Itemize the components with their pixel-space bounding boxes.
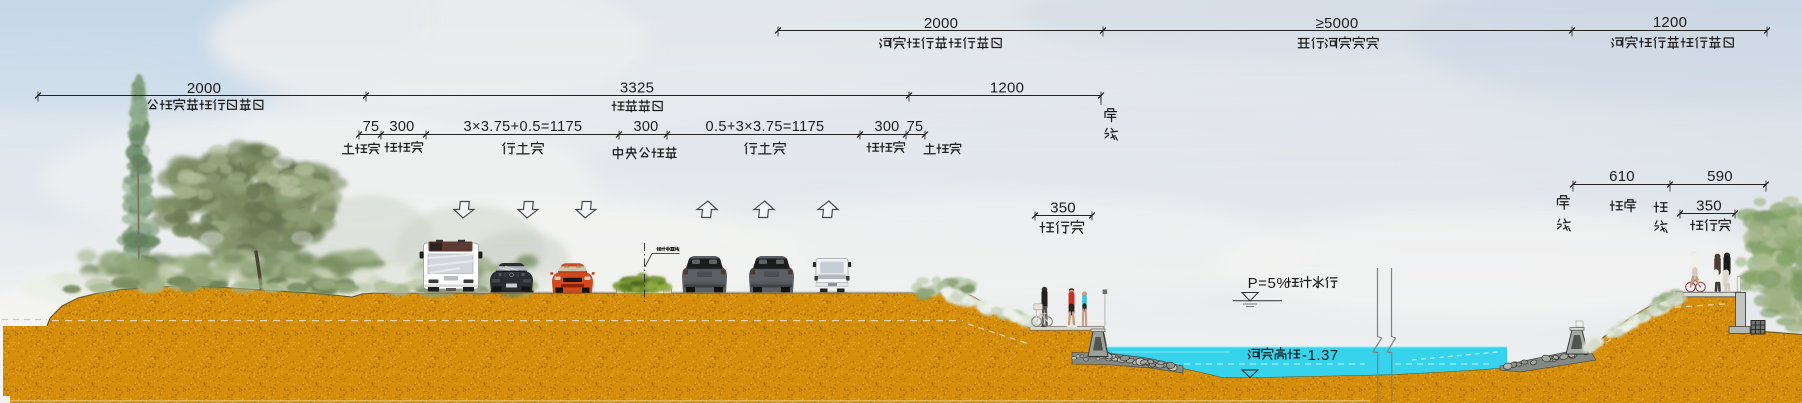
svg-text:2000: 2000: [924, 15, 958, 32]
svg-text:75: 75: [907, 119, 924, 135]
svg-text:610: 610: [1609, 168, 1635, 185]
svg-text:1200: 1200: [1653, 14, 1687, 31]
svg-text:0.5+3×3.75=1175: 0.5+3×3.75=1175: [705, 119, 824, 135]
svg-text:350: 350: [1050, 200, 1076, 217]
svg-text:≥5000: ≥5000: [1316, 15, 1359, 32]
svg-text:2000: 2000: [187, 80, 221, 97]
svg-text:P=5%: P=5%: [1248, 275, 1291, 292]
svg-text:-1.37: -1.37: [1302, 347, 1339, 364]
svg-text:350: 350: [1696, 198, 1722, 215]
svg-text:3×3.75+0.5=1175: 3×3.75+0.5=1175: [463, 119, 582, 135]
svg-text:300: 300: [875, 119, 900, 135]
svg-text:1200: 1200: [990, 80, 1024, 97]
svg-text:3325: 3325: [620, 80, 654, 97]
svg-text:300: 300: [634, 119, 659, 135]
svg-text:75: 75: [363, 119, 380, 135]
svg-text:300: 300: [390, 119, 415, 135]
svg-text:590: 590: [1707, 168, 1733, 185]
